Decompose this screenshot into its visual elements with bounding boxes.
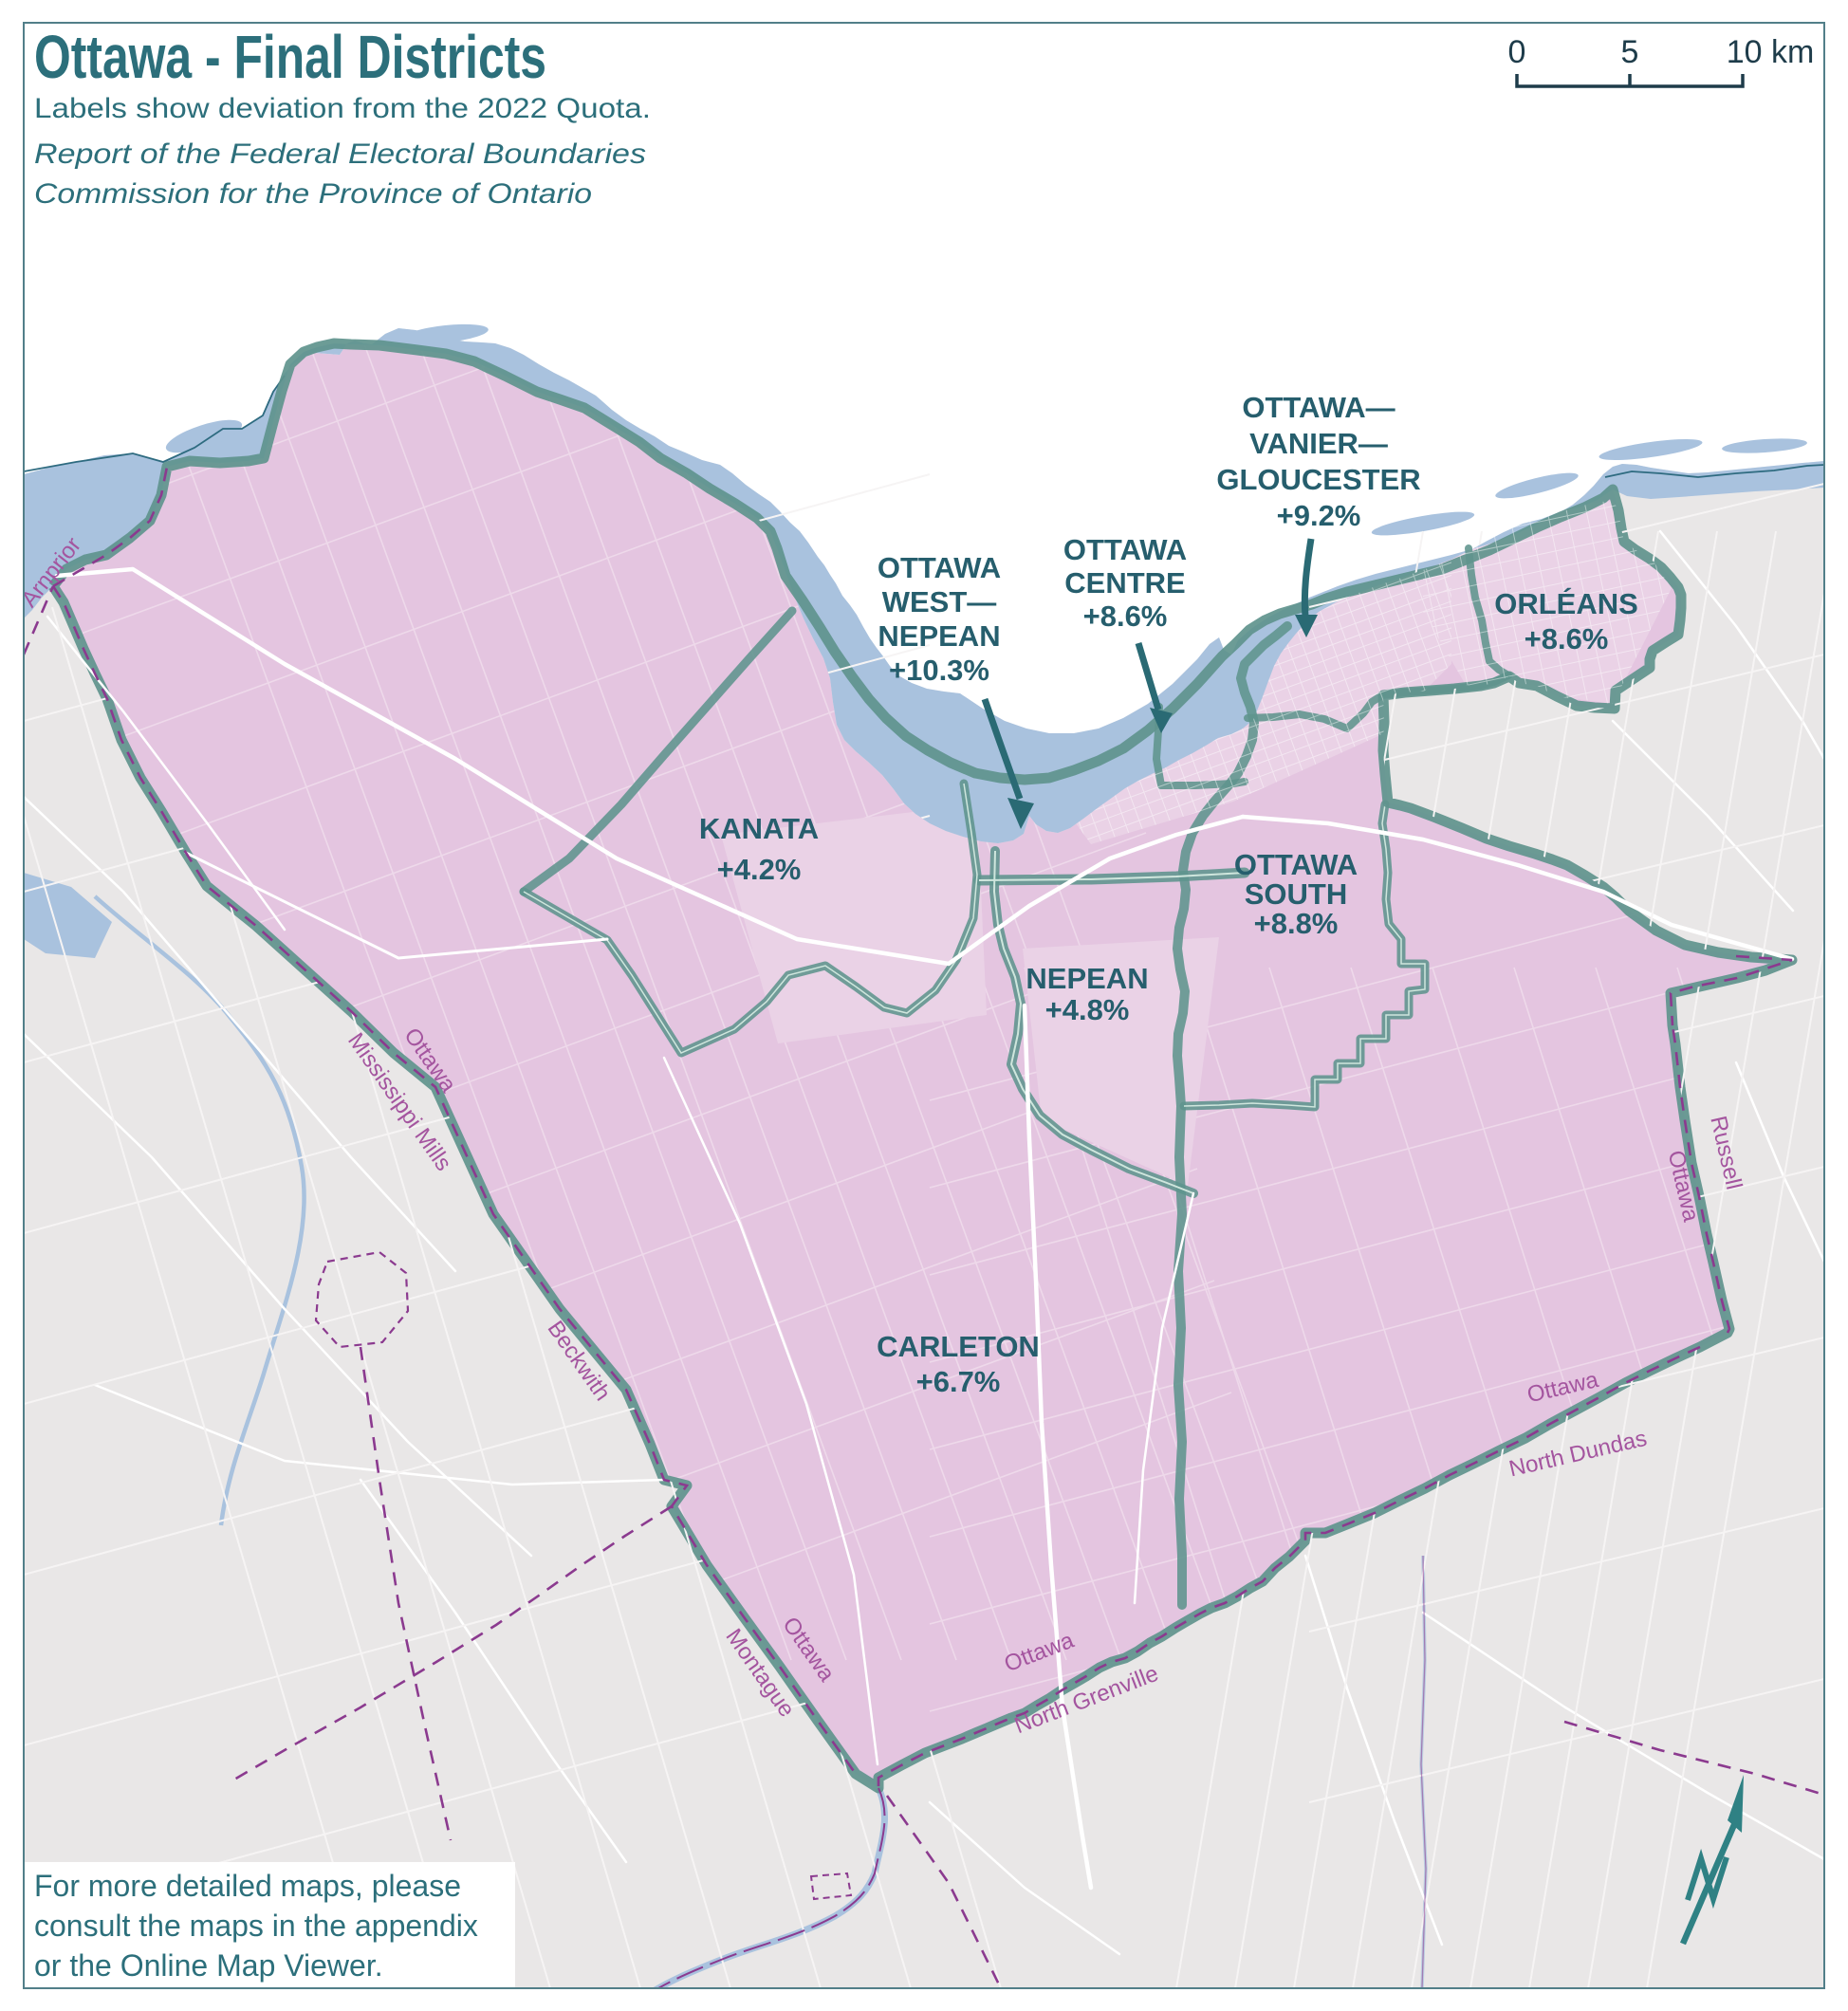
svg-text:SOUTH: SOUTH	[1245, 877, 1348, 911]
svg-text:+6.7%: +6.7%	[916, 1365, 1001, 1398]
svg-text:+4.8%: +4.8%	[1045, 993, 1130, 1026]
svg-text:CARLETON: CARLETON	[877, 1330, 1040, 1363]
svg-text:0: 0	[1508, 34, 1526, 70]
svg-text:OTTAWA: OTTAWA	[1063, 533, 1187, 566]
svg-text:+8.8%: +8.8%	[1254, 907, 1339, 940]
svg-text:OTTAWA—: OTTAWA—	[1242, 391, 1395, 424]
svg-text:For more detailed maps, please: For more detailed maps, please	[34, 1869, 461, 1903]
svg-text:OTTAWA: OTTAWA	[878, 551, 1001, 584]
svg-text:Ottawa - Final Districts: Ottawa - Final Districts	[34, 23, 546, 91]
svg-text:+10.3%: +10.3%	[889, 654, 989, 687]
svg-text:WEST—: WEST—	[882, 585, 997, 618]
svg-text:+9.2%: +9.2%	[1277, 499, 1361, 532]
svg-text:5: 5	[1621, 34, 1639, 70]
svg-text:+4.2%: +4.2%	[717, 853, 802, 886]
svg-text:Labels show deviation from the: Labels show deviation from the 2022 Quot…	[34, 93, 651, 124]
svg-text:KANATA: KANATA	[699, 812, 819, 845]
svg-text:CENTRE: CENTRE	[1064, 566, 1185, 600]
svg-text:NEPEAN: NEPEAN	[1026, 962, 1148, 995]
svg-text:GLOUCESTER: GLOUCESTER	[1216, 463, 1420, 496]
svg-text:or the Online Map Viewer.: or the Online Map Viewer.	[34, 1948, 383, 1983]
svg-text:consult the maps in the append: consult the maps in the appendix	[34, 1909, 478, 1943]
svg-text:Report of the Federal Electora: Report of the Federal Electoral Boundari…	[34, 138, 646, 170]
svg-text:+8.6%: +8.6%	[1525, 622, 1609, 655]
svg-text:Commission for the Province of: Commission for the Province of Ontario	[34, 178, 592, 210]
svg-text:NEPEAN: NEPEAN	[878, 619, 1000, 653]
svg-text:OTTAWA: OTTAWA	[1234, 848, 1358, 881]
svg-text:VANIER—: VANIER—	[1249, 427, 1388, 460]
svg-text:10 km: 10 km	[1727, 34, 1815, 70]
svg-text:+8.6%: +8.6%	[1083, 600, 1168, 633]
svg-text:ORLÉANS: ORLÉANS	[1494, 587, 1638, 620]
